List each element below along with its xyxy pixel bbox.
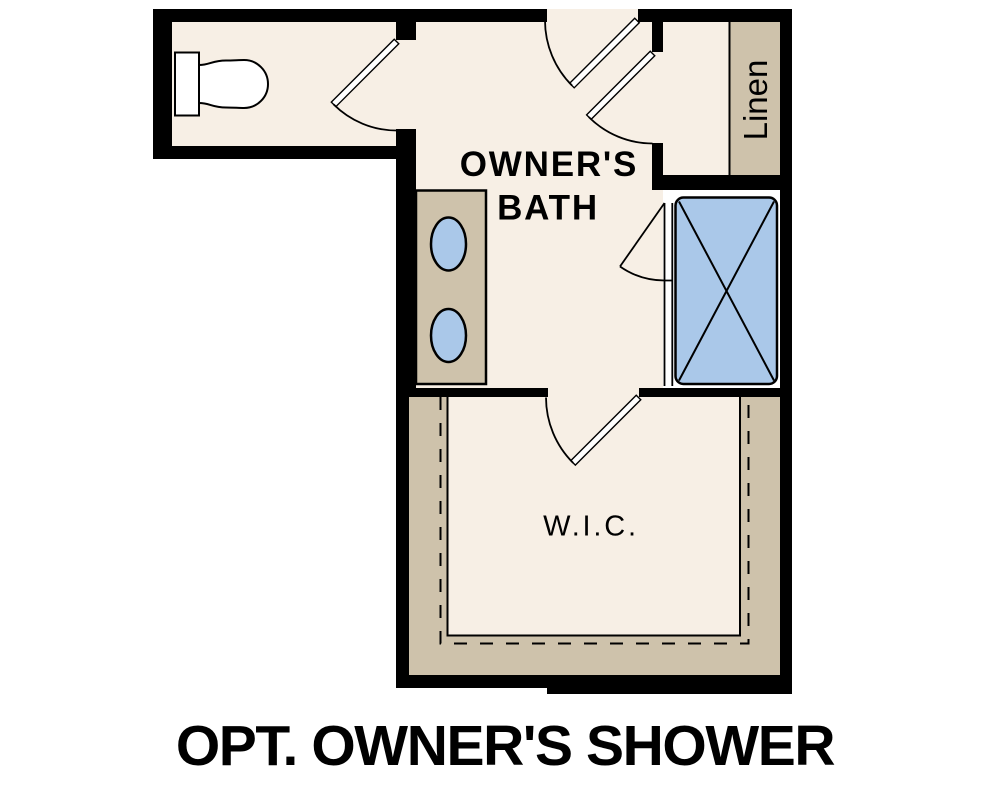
svg-text:W.I.C.: W.I.C. — [543, 511, 639, 543]
svg-text:Linen: Linen — [737, 60, 774, 141]
svg-text:OPT. OWNER'S SHOWER: OPT. OWNER'S SHOWER — [176, 714, 835, 778]
svg-text:BATH: BATH — [497, 189, 599, 228]
svg-text:OWNER'S: OWNER'S — [460, 145, 638, 184]
